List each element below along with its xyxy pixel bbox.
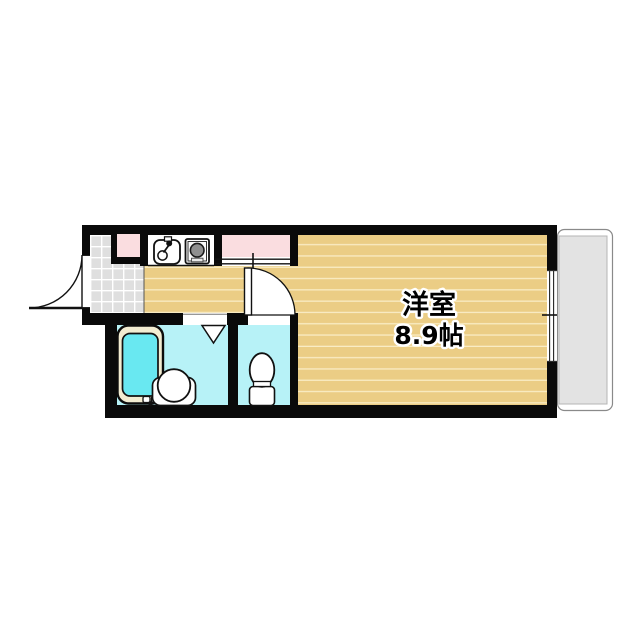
balcony-deck xyxy=(559,236,607,404)
wall-right-upper xyxy=(547,225,557,270)
washroom-doorway xyxy=(183,313,227,325)
stove-burner-icon xyxy=(186,239,210,264)
wall-toilet-main xyxy=(290,313,298,407)
wall-top xyxy=(82,225,557,235)
wall-closet-right xyxy=(290,225,298,266)
toilet-door-leaf xyxy=(245,268,252,315)
entrance-swing-door xyxy=(29,255,82,308)
wall-bottom xyxy=(105,405,557,418)
main-room-label: 洋室 xyxy=(402,289,456,321)
wall-right-lower xyxy=(547,362,557,418)
closet xyxy=(215,235,290,270)
window-opening xyxy=(547,270,557,362)
wall-bath-left xyxy=(105,313,117,418)
kitchen-sink-icon xyxy=(154,237,180,264)
shoe-cabinet xyxy=(117,234,140,257)
wall-wash-toilet xyxy=(228,315,238,407)
balcony xyxy=(558,230,613,411)
floor-plan-drawing: 洋室 8.9帖 xyxy=(0,0,640,640)
main-room-size-label: 8.9帖 xyxy=(394,321,463,350)
wall-shoe-bottom xyxy=(111,257,148,264)
entrance xyxy=(29,255,90,308)
toilet xyxy=(250,353,275,405)
closet-interior xyxy=(222,235,290,257)
floor-plan-page: 洋室 8.9帖 xyxy=(0,0,640,640)
entrance-doorway xyxy=(82,255,90,308)
wall-genkan-bottom xyxy=(82,313,183,325)
wall-left-upper xyxy=(82,225,90,255)
closet-door-track xyxy=(222,257,290,266)
